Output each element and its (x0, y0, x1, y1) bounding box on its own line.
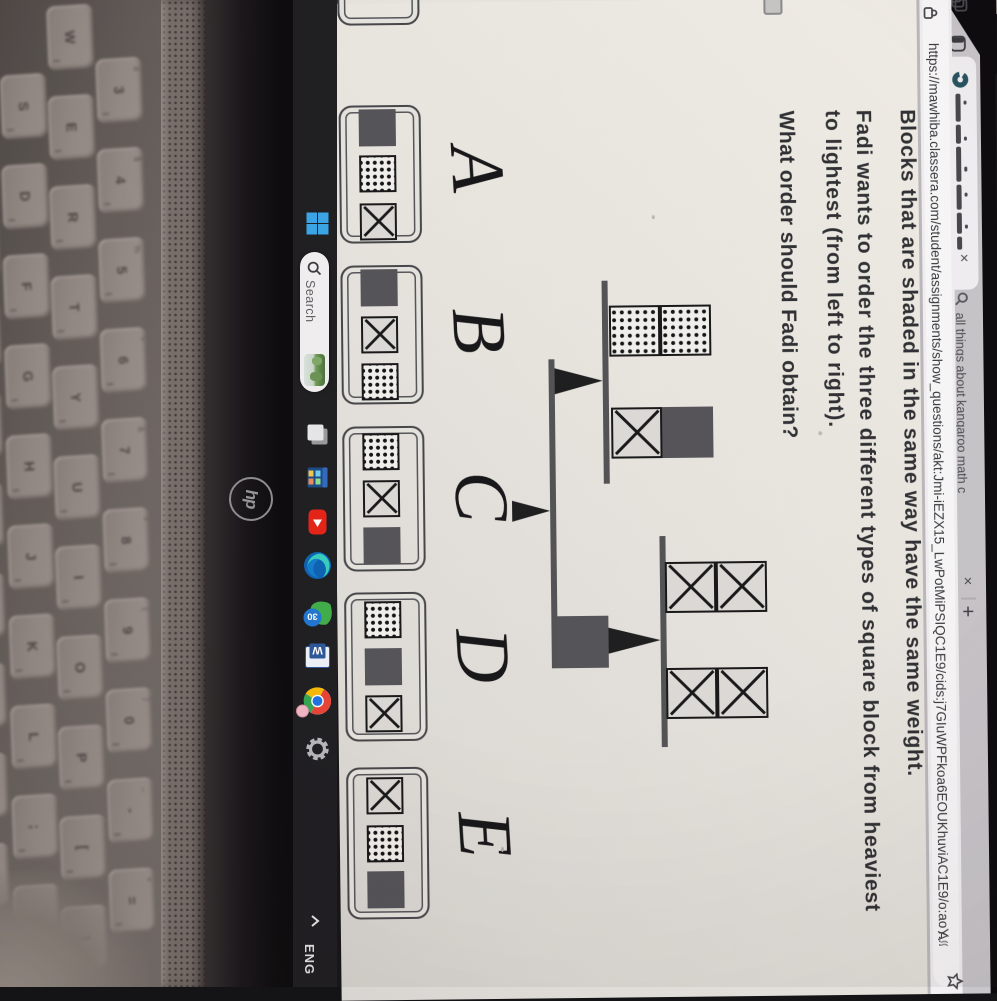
svg-text:W: W (312, 644, 323, 656)
svg-text:30: 30 (307, 611, 318, 622)
